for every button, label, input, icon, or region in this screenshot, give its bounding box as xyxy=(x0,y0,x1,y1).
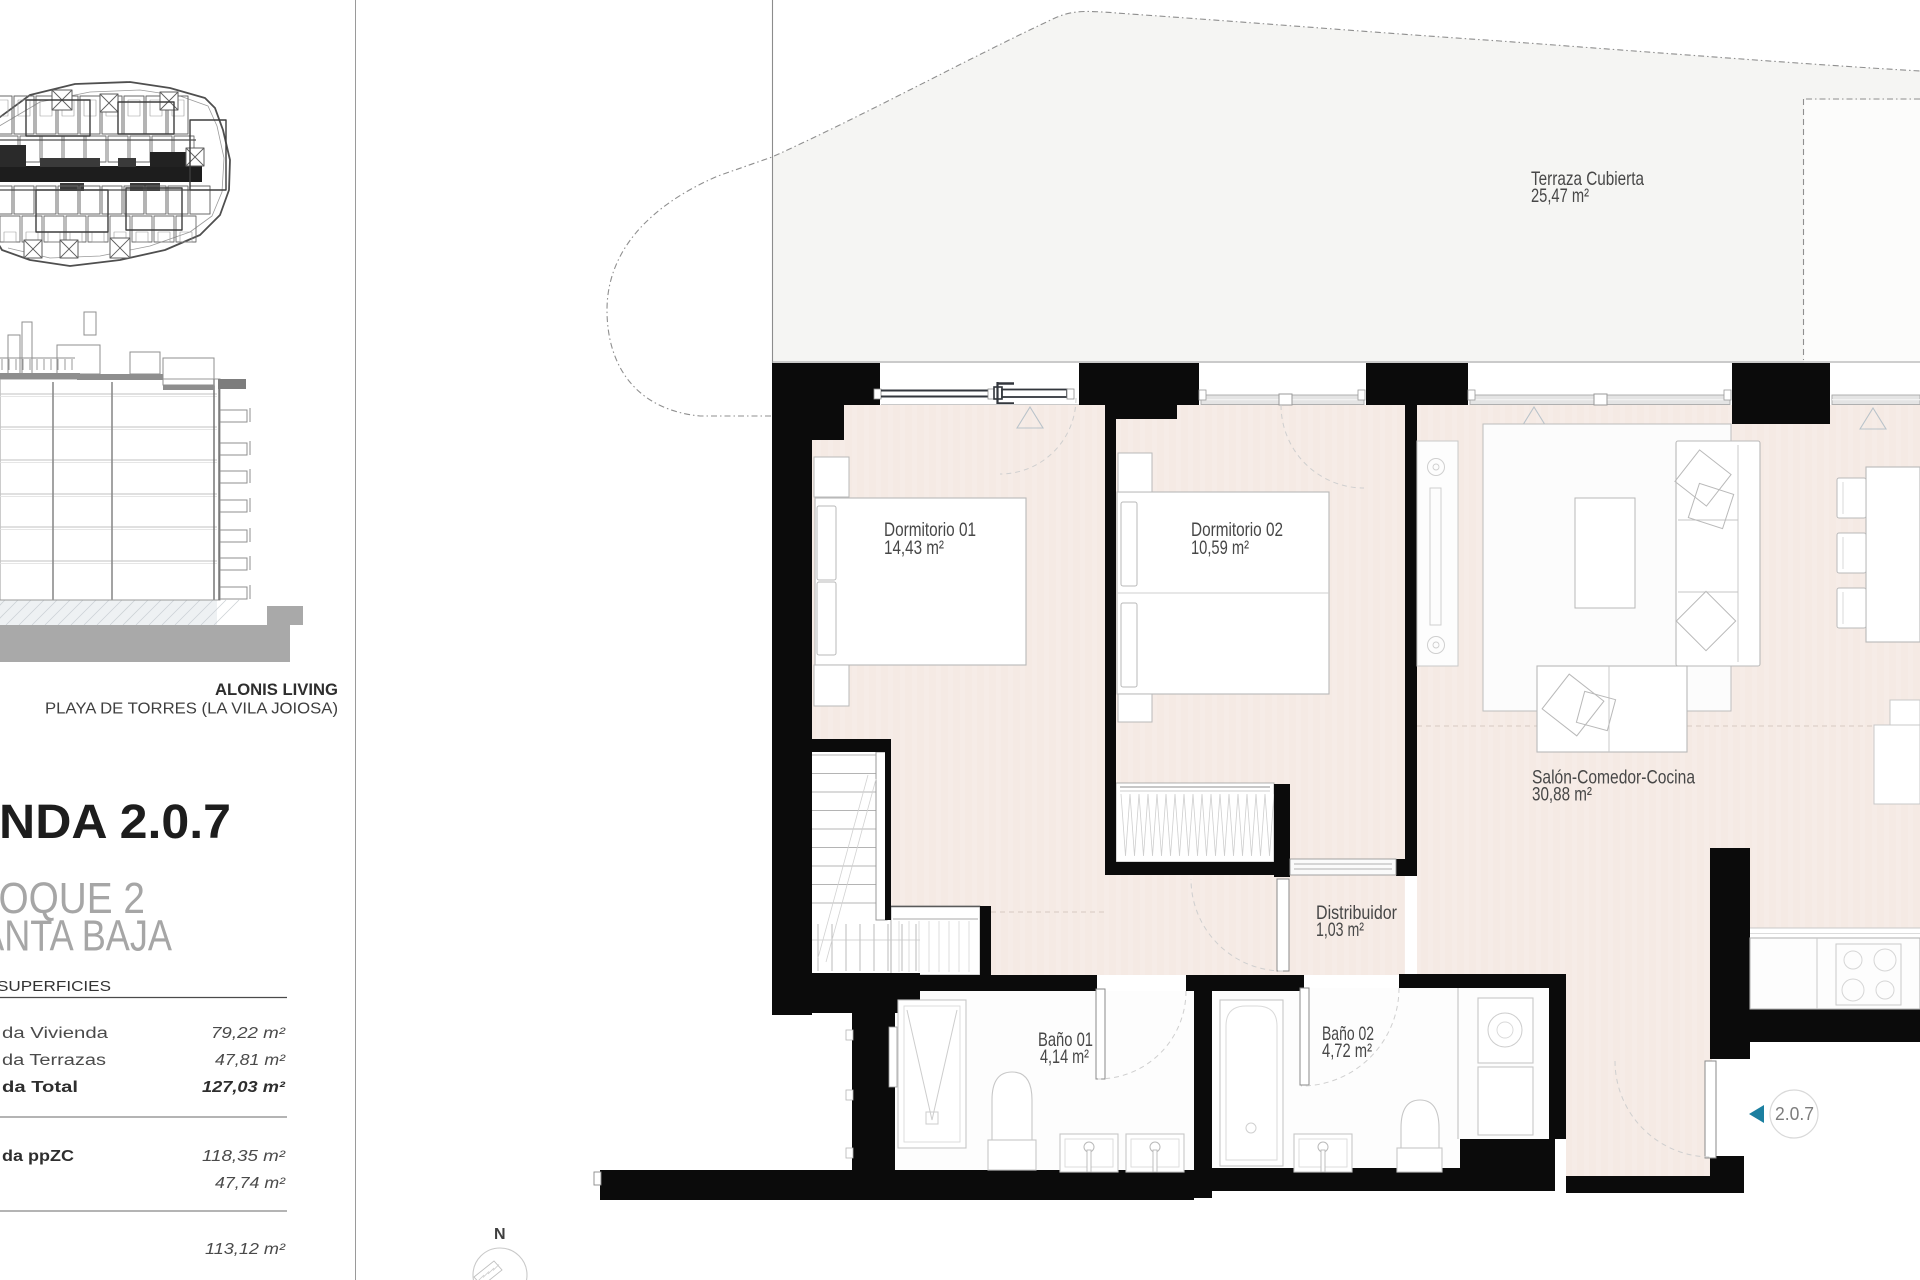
svg-text:30,88 m²: 30,88 m² xyxy=(1532,784,1592,806)
svg-text:14,43 m²: 14,43 m² xyxy=(884,537,944,559)
svg-text:ALONIS LIVING: ALONIS LIVING xyxy=(215,681,338,699)
svg-text:N: N xyxy=(494,1226,506,1243)
svg-text:25,47 m²: 25,47 m² xyxy=(1531,185,1589,207)
svg-text:10,59 m²: 10,59 m² xyxy=(1191,537,1249,559)
svg-text:da Terrazas: da Terrazas xyxy=(2,1052,106,1069)
svg-text:PLAYA DE TORRES (LA VILA JOIOS: PLAYA DE TORRES (LA VILA JOIOSA) xyxy=(45,701,338,718)
svg-text:127,03 m²: 127,03 m² xyxy=(202,1079,286,1096)
svg-text:113,12 m²: 113,12 m² xyxy=(205,1241,286,1258)
svg-text:47,81 m²: 47,81 m² xyxy=(215,1052,286,1069)
svg-text:SUPERFICIES: SUPERFICIES xyxy=(0,978,111,995)
svg-text:PLANTA BAJA: PLANTA BAJA xyxy=(0,912,173,961)
svg-text:47,74 m²: 47,74 m² xyxy=(215,1175,286,1192)
svg-text:1,03 m²: 1,03 m² xyxy=(1316,919,1364,941)
svg-text:da Vivienda: da Vivienda xyxy=(2,1025,108,1042)
svg-text:4,72 m²: 4,72 m² xyxy=(1322,1040,1372,1062)
svg-text:da ppZC: da ppZC xyxy=(2,1148,74,1165)
svg-text:da Total: da Total xyxy=(2,1079,78,1096)
svg-text:79,22 m²: 79,22 m² xyxy=(211,1025,286,1042)
svg-text:4,14 m²: 4,14 m² xyxy=(1040,1046,1089,1068)
svg-text:2.0.7: 2.0.7 xyxy=(1775,1104,1814,1124)
svg-text:VIVIENDA 2.0.7: VIVIENDA 2.0.7 xyxy=(0,796,231,849)
svg-text:118,35 m²: 118,35 m² xyxy=(202,1148,286,1165)
